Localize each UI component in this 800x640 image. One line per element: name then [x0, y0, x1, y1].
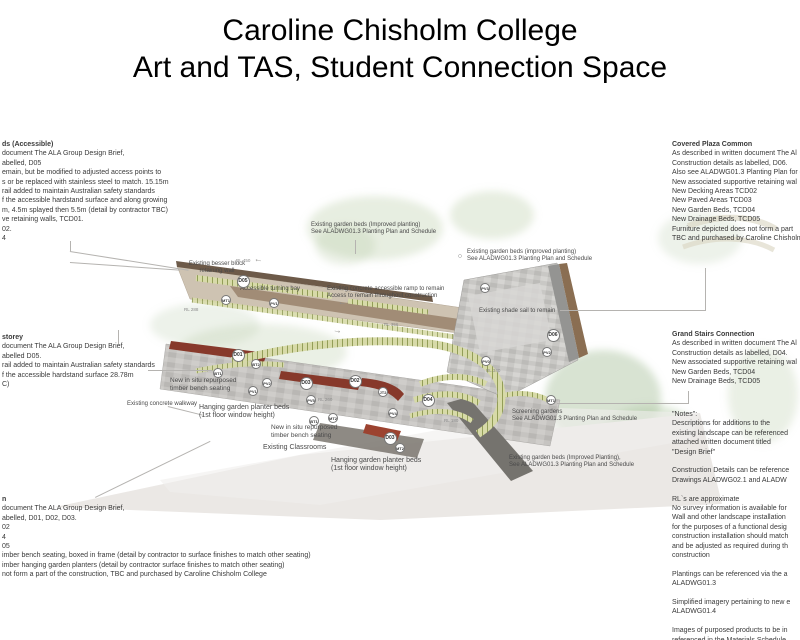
detail-marker: BT2	[251, 359, 261, 369]
annotation-line: Construction details as labelled, D04.	[672, 349, 800, 358]
annotation-line: not form a part of the construction, TBC…	[2, 570, 402, 579]
plan-label: Hanging garden planter beds (1st floor w…	[199, 404, 289, 421]
annotation-line: 02	[2, 523, 402, 532]
annotation-line: abelled, D01, D02, D03.	[2, 514, 402, 523]
detail-marker: BT1	[309, 416, 319, 426]
detail-marker: PV3	[480, 283, 490, 293]
annotation-line: Construction details as labelled, D06.	[672, 159, 800, 168]
plan-label: Existing shade sail to remain	[479, 308, 555, 315]
rl-level-label: RL 260	[318, 397, 332, 402]
annotation-line	[672, 589, 800, 598]
plan-label: Existing concrete walkway	[127, 401, 197, 408]
detail-marker: PV1	[248, 386, 258, 396]
annotation-covered-plaza-common: Covered Plaza Common As described in wri…	[672, 140, 800, 243]
annotation-storey: storey document The ALA Group Design Bri…	[2, 333, 182, 389]
drawing-sheet: { "title": { "line1": "Caroline Chisholm…	[0, 0, 800, 640]
rl-level-label: RL 450	[236, 258, 250, 263]
annotation-line: document The ALA Group Design Brief,	[2, 149, 182, 158]
annotation-line: Images of purposed products to be in	[672, 626, 800, 635]
annotation-line: ALADWG01.3	[672, 579, 800, 588]
annotation-line: construction	[672, 551, 800, 560]
annotation-line: abelled D05.	[2, 352, 182, 361]
annotation-line: Simplified imagery pertaining to new e	[672, 598, 800, 607]
annotation-line: Furniture depicted does not form a part	[672, 225, 800, 234]
plan-label: Accessible turning bay	[240, 286, 300, 293]
annotation-line: construction installation should match	[672, 532, 800, 541]
annotation-line: Also see ALADWG01.3 Planting Plan for g	[672, 168, 800, 177]
plan-label: Existing besser block retaining wall	[179, 261, 255, 275]
annotation-line: C)	[2, 380, 182, 389]
annotation-line: Drawings ALADWG02.1 and ALADW	[672, 476, 800, 485]
leader-line	[118, 330, 119, 344]
annotation-line: 4	[2, 533, 402, 542]
rl-level-label: RL 288	[184, 307, 198, 312]
detail-marker: MT1	[221, 295, 231, 305]
annotation-line: m, 4.5m splayed then 5.5m (detail by con…	[2, 206, 182, 215]
title-line-2: Art and TAS, Student Connection Space	[0, 49, 800, 86]
annotation-line: "Notes":	[672, 410, 800, 419]
direction-arrow-icon: →	[332, 325, 342, 335]
detail-marker: PV5	[306, 395, 316, 405]
annotation-line: As described in written document The Al	[672, 339, 800, 348]
annotation-line: referenced in the Materials Schedule	[672, 636, 800, 640]
annotation-line: Wall and other landscape installation	[672, 513, 800, 522]
annotation-line	[672, 560, 800, 569]
annotation-line: abelled, D05	[2, 159, 182, 168]
annotation-line	[672, 617, 800, 626]
leader-line	[557, 403, 689, 404]
detail-marker: D02	[349, 375, 362, 388]
plan-label: New in situ repurposed timber bench seat…	[271, 424, 337, 440]
detail-marker: D03	[384, 432, 397, 445]
annotation-line: Plantings can be referenced via the a	[672, 570, 800, 579]
annotation-line: New Garden Beds, TCD04	[672, 206, 800, 215]
annotation-line: emain, but be modified to adjusted acces…	[2, 168, 182, 177]
annotation-line: New Paved Areas TCD03	[672, 196, 800, 205]
annotation-line: New Drainage Beds, TCD05	[672, 215, 800, 224]
annotation-line: for the purposes of a functional desig	[672, 523, 800, 532]
rl-level-label: RL 356	[384, 322, 398, 327]
rl-level-label: RL 340	[486, 368, 500, 373]
annotation-line: New Decking Areas TCD02	[672, 187, 800, 196]
detail-marker: PV2	[542, 347, 552, 357]
detail-marker: PV2	[262, 378, 272, 388]
page-title: Caroline Chisholm College Art and TAS, S…	[0, 12, 800, 86]
annotation-line: 02.	[2, 225, 182, 234]
detail-marker: D06	[547, 329, 560, 342]
annotation-line: f the accessible hardstand surface and a…	[2, 196, 182, 205]
detail-marker: BT1	[213, 368, 223, 378]
plan-label: Screening gardens See ALADWG01.3 Plantin…	[512, 409, 637, 423]
direction-arrow-icon: ←	[337, 297, 347, 307]
annotation-line: RL`s are approximate	[672, 495, 800, 504]
detail-marker: MT2	[328, 413, 338, 423]
detail-marker: D03	[300, 377, 313, 390]
annotation-line: TBC and purchased by Caroline Chisholm	[672, 234, 800, 243]
annotation-line: No survey information is available for	[672, 504, 800, 513]
leader-line	[705, 268, 706, 311]
annotation-heading: n	[2, 495, 402, 504]
annotation-line: s or be replaced with stainless steel to…	[2, 178, 182, 187]
annotation-line: f the accessible hardstand surface 28.78…	[2, 371, 182, 380]
detail-marker: D04	[422, 394, 435, 407]
annotation-line: ve retaining walls, TCD01.	[2, 215, 182, 224]
plan-label: Existing garden beds (Improved Planting)…	[509, 455, 634, 469]
annotation-line: rail added to maintain Australian safety…	[2, 187, 182, 196]
annotation-line: "Design Brief"	[672, 448, 800, 457]
annotation-line: New associated supportive retaining wal	[672, 178, 800, 187]
leader-line	[560, 310, 706, 311]
plan-label: Existing Classrooms	[263, 444, 326, 452]
detail-marker: MT2	[395, 443, 405, 453]
plan-label: Existing garden beds (Improved planting)…	[311, 222, 436, 236]
detail-marker: PV1	[269, 298, 279, 308]
annotation-line	[672, 457, 800, 466]
detail-marker: D01	[232, 349, 245, 362]
direction-arrow-icon: ←	[253, 254, 263, 264]
annotation-line: Descriptions for additions to the	[672, 419, 800, 428]
annotation-grand-stairs-connection: Grand Stairs Connection As described in …	[672, 330, 800, 386]
plan-label: Existing garden beds (improved planting)…	[467, 249, 592, 263]
annotation-heading: ds (Accessible)	[2, 140, 182, 149]
annotation-line: 4	[2, 234, 182, 243]
annotation-line: document The ALA Group Design Brief,	[2, 504, 402, 513]
title-line-1: Caroline Chisholm College	[0, 12, 800, 49]
annotation-line: Construction Details can be reference	[672, 466, 800, 475]
annotation-line: imber bench seating, boxed in frame (det…	[2, 551, 402, 560]
detail-marker: D05	[237, 275, 250, 288]
rl-level-label: RL 180	[444, 418, 458, 423]
annotation-line: 05	[2, 542, 402, 551]
annotation-heading: Grand Stairs Connection	[672, 330, 800, 339]
annotation-line: New Garden Beds, TCD04	[672, 368, 800, 377]
annotation-line: existing landscape can be referenced	[672, 429, 800, 438]
annotation-garden-beds-accessible: ds (Accessible) document The ALA Group D…	[2, 140, 182, 243]
leader-line	[148, 370, 212, 371]
annotation-line: imber hanging garden planters (detail by…	[2, 561, 402, 570]
annotation-line	[672, 485, 800, 494]
annotation-line: and be adjusted as required during th	[672, 542, 800, 551]
annotation-line: New Drainage Beds, TCD05	[672, 377, 800, 386]
plan-label: New in situ repurposed timber bench seat…	[170, 377, 236, 393]
plan-label: Hanging garden planter beds (1st floor w…	[331, 457, 421, 474]
detail-marker: JT2	[378, 387, 388, 397]
leader-line	[70, 241, 71, 251]
leader-line	[688, 391, 689, 404]
annotation-line: attached written document titled	[672, 438, 800, 447]
annotation-line: ALADWG01.4	[672, 607, 800, 616]
annotation-line: As described in written document The Al	[672, 149, 800, 158]
annotation-seating-planters: n document The ALA Group Design Brief,ab…	[2, 495, 402, 580]
annotation-heading: storey	[2, 333, 182, 342]
annotation-heading: Covered Plaza Common	[672, 140, 800, 149]
annotation-line: document The ALA Group Design Brief,	[2, 342, 182, 351]
detail-marker: MT1	[546, 395, 556, 405]
annotation-line: New associated supportive retaining wal	[672, 358, 800, 367]
leader-line	[355, 240, 356, 254]
detail-marker: PV4	[388, 408, 398, 418]
annotation-notes: "Notes":Descriptions for additions to th…	[672, 410, 800, 640]
detail-marker: PV0	[481, 356, 491, 366]
